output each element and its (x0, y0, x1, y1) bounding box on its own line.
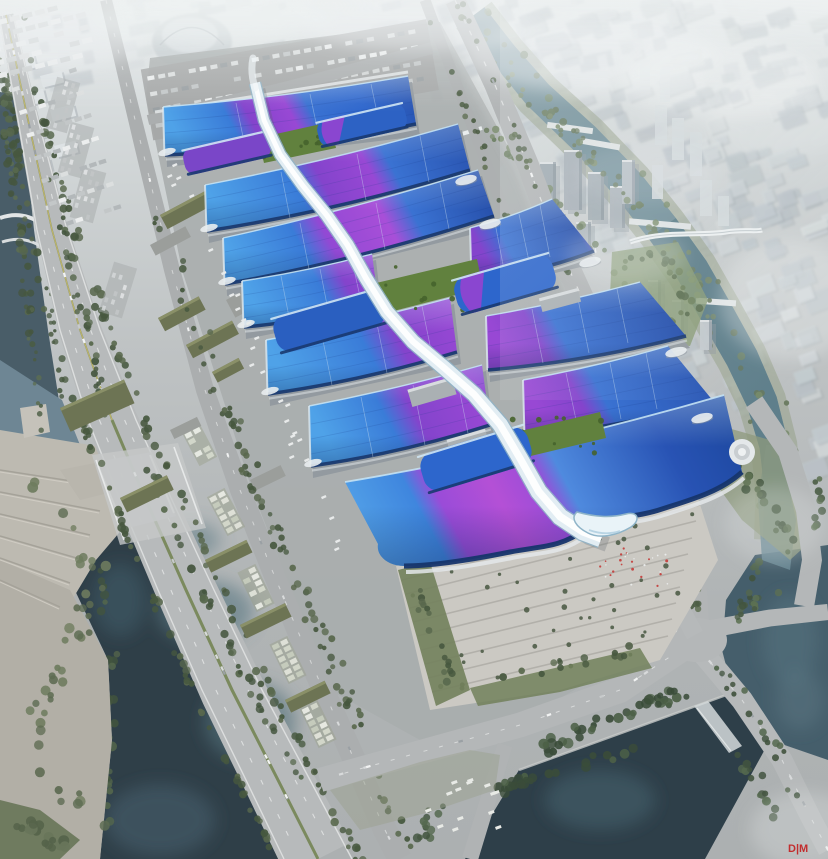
svg-text:D|M: D|M (788, 843, 808, 855)
